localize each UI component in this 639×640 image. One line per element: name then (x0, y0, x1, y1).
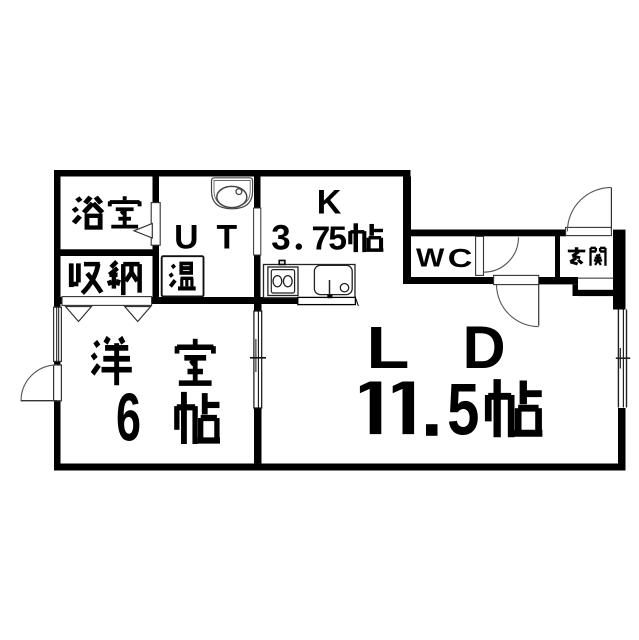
svg-text:C: C (448, 243, 473, 273)
svg-text:3: 3 (271, 219, 290, 258)
svg-text:5: 5 (447, 370, 479, 451)
svg-text:6: 6 (116, 381, 141, 456)
svg-text:W: W (416, 245, 444, 273)
svg-text:5: 5 (328, 220, 347, 258)
svg-text:T: T (217, 218, 238, 256)
svg-text:L: L (366, 314, 409, 381)
svg-text:K: K (317, 184, 342, 222)
svg-text:U: U (174, 218, 198, 256)
